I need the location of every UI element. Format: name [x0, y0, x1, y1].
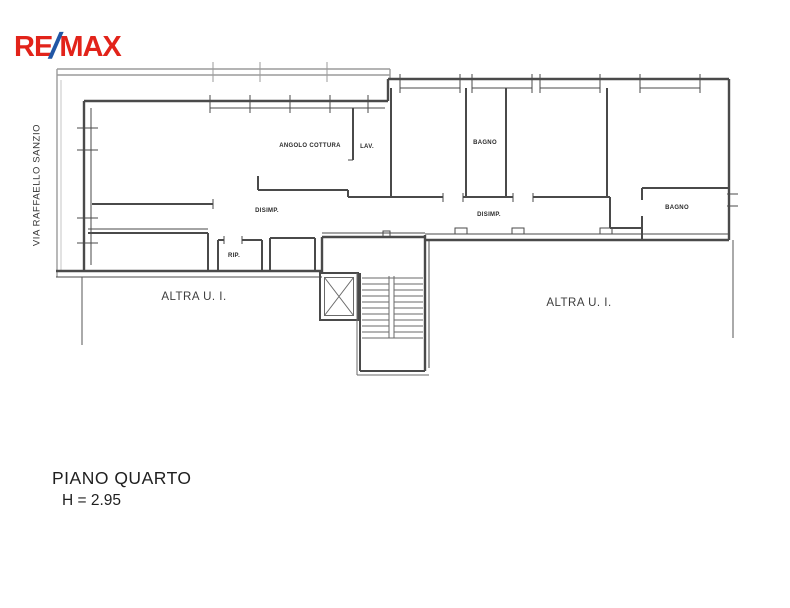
room-label-laundry: LAV.	[360, 144, 374, 150]
windows-top-left	[210, 95, 385, 113]
elevator-shaft	[320, 273, 358, 320]
balcony-band	[57, 62, 390, 277]
floor-plan-drawing	[0, 0, 790, 608]
elevator-x-icon	[325, 278, 354, 316]
staircase	[357, 273, 429, 375]
door-jambs	[88, 160, 612, 244]
floor-title: PIANO QUARTO	[52, 468, 192, 489]
room-label-bath1: BAGNO	[473, 140, 497, 146]
windows-top-right	[400, 74, 738, 206]
interior-walls	[88, 88, 729, 271]
windows-left-wall	[77, 128, 98, 243]
room-label-kitchen: ANGOLO COTTURA	[279, 143, 341, 149]
room-label-bath2: BAGNO	[665, 205, 689, 211]
area-label-other-unit-left: ALTRA U. I.	[161, 291, 226, 303]
room-label-hall-left: DISIMP.	[255, 208, 279, 214]
room-label-hall-right: DISIMP.	[477, 212, 501, 218]
floorplan-page: RE/MAX VIA RAFFAELLO SANZIO	[0, 0, 790, 608]
room-label-storage: RIP.	[228, 253, 240, 259]
outer-walls	[56, 79, 729, 371]
stair-treads	[362, 276, 423, 338]
area-label-other-unit-right: ALTRA U. I.	[546, 297, 611, 309]
ceiling-height: H = 2.95	[52, 492, 192, 510]
title-block: PIANO QUARTO H = 2.95	[52, 468, 192, 510]
